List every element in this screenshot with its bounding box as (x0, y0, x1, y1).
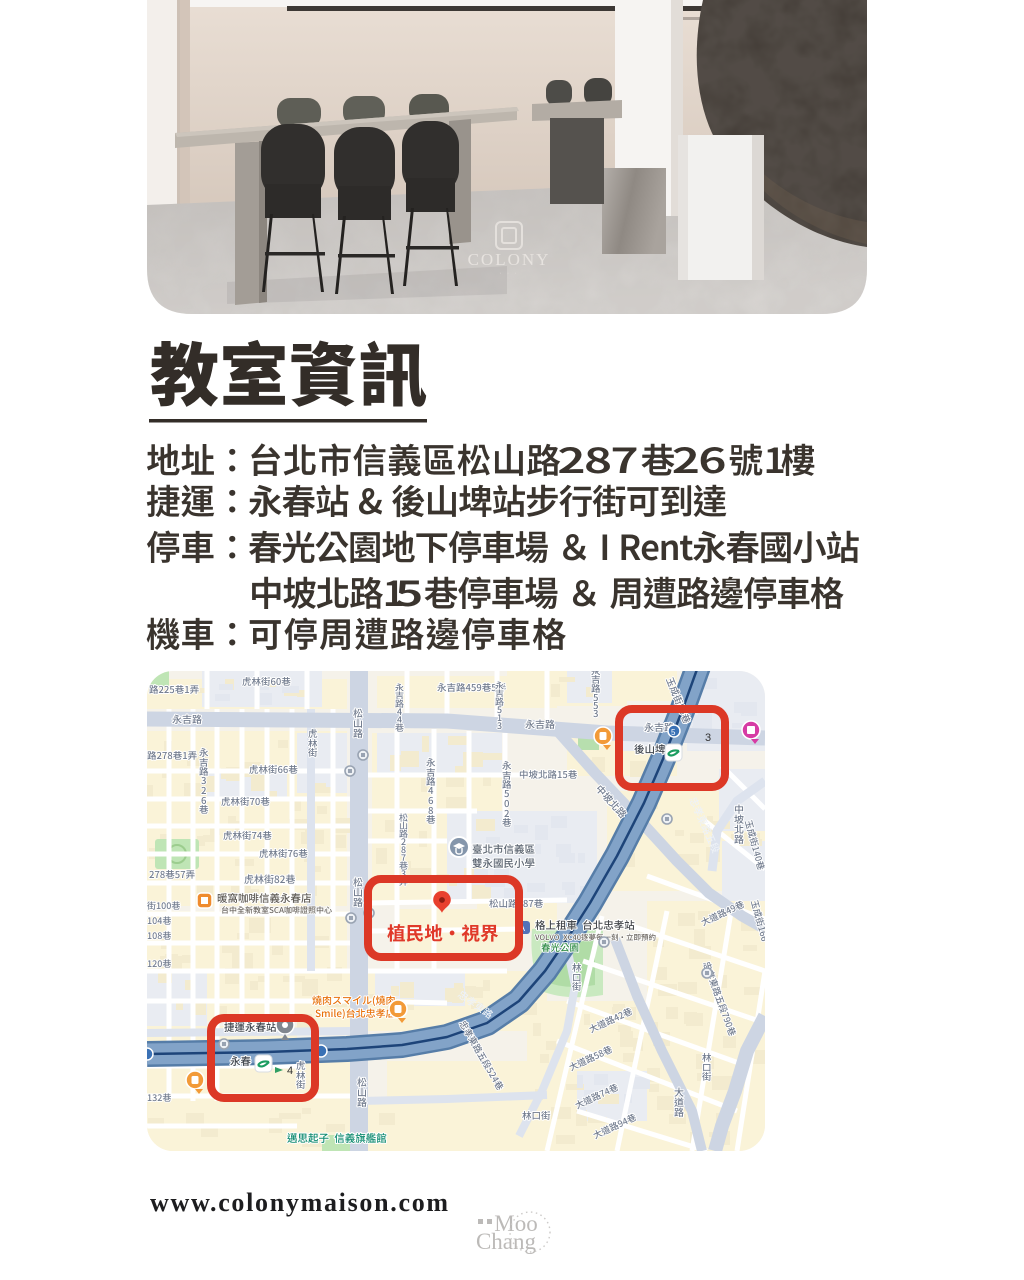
svg-text:· · ·: · · · (500, 271, 519, 277)
svg-text:www.colonymaison.com: www.colonymaison.com (150, 1188, 450, 1217)
svg-text:5: 5 (671, 728, 676, 737)
svg-text:Chang: Chang (476, 1229, 537, 1254)
svg-text:3: 3 (705, 732, 711, 744)
svg-text:COLONY: COLONY (468, 250, 551, 269)
svg-text:4: 4 (287, 1065, 293, 1077)
